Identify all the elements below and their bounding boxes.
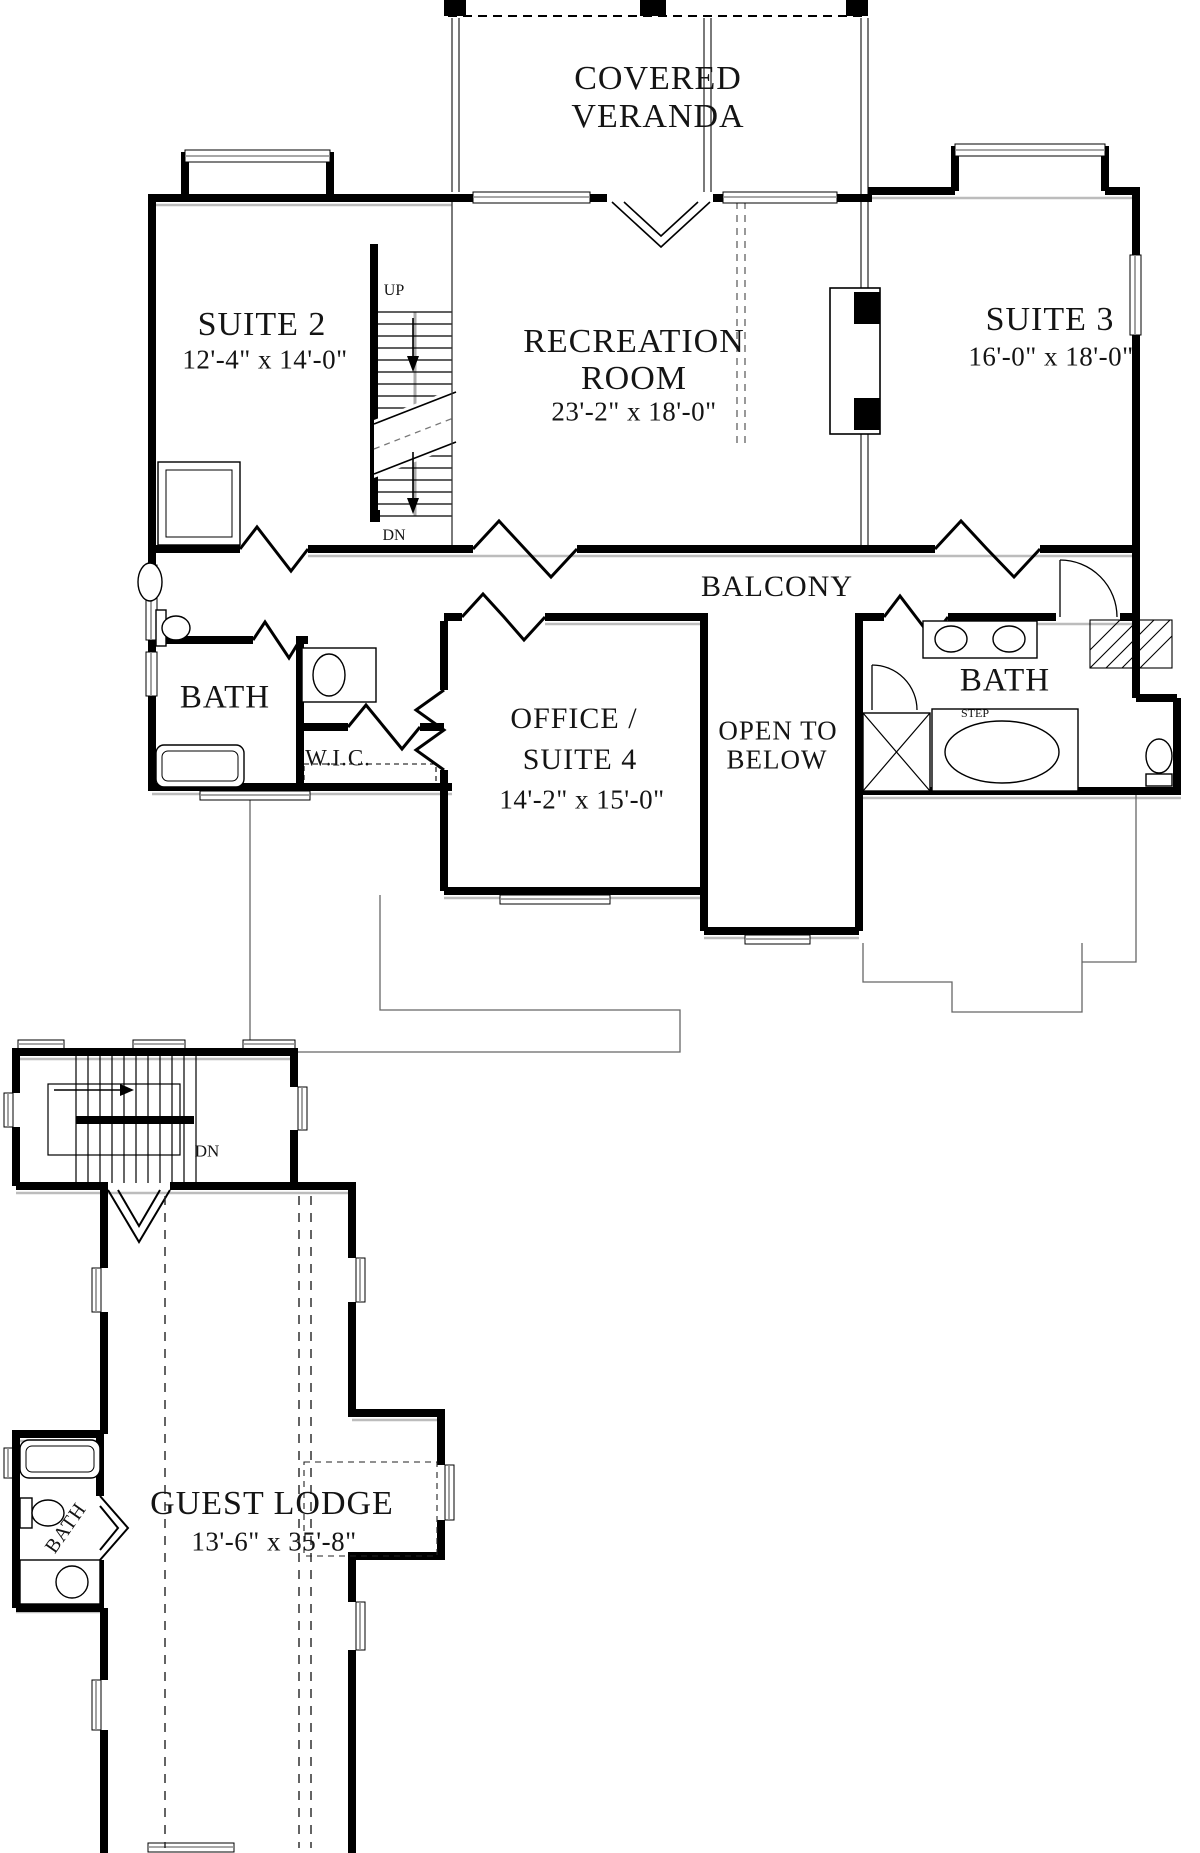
main-floor-walls bbox=[152, 146, 1181, 931]
room-dims-recreation: 23'-2" x 18'-0" bbox=[551, 399, 716, 426]
room-label-balcony: BALCONY bbox=[701, 572, 853, 602]
fireplace bbox=[737, 202, 880, 445]
room-label-bath-right: BATH bbox=[960, 665, 1050, 698]
label-open-to-below-line2: BELOW bbox=[727, 747, 828, 774]
room-label-office-line1: OFFICE / bbox=[510, 704, 637, 734]
room-label-recreation-line1: RECREATION bbox=[523, 325, 745, 359]
lodge-ceiling-lines bbox=[165, 1196, 437, 1848]
stairs-up-label: UP bbox=[384, 283, 404, 299]
room-dims-guest-lodge: 13'-6" x 35'-8" bbox=[191, 1529, 356, 1556]
floor-plan: COVERED VERANDA SUITE 2 12'-4" x 14'-0" … bbox=[0, 0, 1200, 1853]
main-stairs bbox=[370, 202, 456, 545]
label-open-to-below-line1: OPEN TO bbox=[718, 718, 837, 745]
stairs-down-label: DN bbox=[382, 528, 405, 544]
room-label-covered-veranda-line2: VERANDA bbox=[571, 100, 744, 134]
room-label-office-line2: SUITE 4 bbox=[523, 745, 638, 775]
right-bath-fixtures bbox=[863, 620, 1172, 791]
veranda-post bbox=[444, 0, 466, 16]
room-dims-office: 14'-2" x 15'-0" bbox=[499, 787, 664, 814]
room-dims-suite-3: 16'-0" x 18'-0" bbox=[968, 344, 1133, 371]
veranda-door bbox=[612, 202, 710, 247]
lodge-stairs bbox=[48, 1052, 196, 1183]
room-label-wic: W.I.C. bbox=[305, 747, 371, 770]
lodge-stairs-down-label: DN bbox=[195, 1143, 220, 1160]
veranda-post bbox=[640, 0, 666, 16]
room-label-bath-left: BATH bbox=[180, 682, 270, 715]
floorplan-svg bbox=[0, 0, 1200, 1853]
room-label-recreation-line2: ROOM bbox=[581, 362, 687, 396]
room-dims-suite-2: 12'-4" x 14'-0" bbox=[182, 347, 347, 374]
label-step: STEP bbox=[961, 707, 989, 719]
room-label-suite-2: SUITE 2 bbox=[198, 308, 327, 342]
linen-hatch bbox=[1090, 620, 1172, 668]
veranda-post bbox=[846, 0, 868, 16]
roof-outline bbox=[250, 795, 1136, 1052]
room-label-covered-veranda-line1: COVERED bbox=[574, 62, 742, 96]
room-label-guest-lodge: GUEST LODGE bbox=[150, 1487, 394, 1521]
room-label-suite-3: SUITE 3 bbox=[986, 303, 1115, 337]
